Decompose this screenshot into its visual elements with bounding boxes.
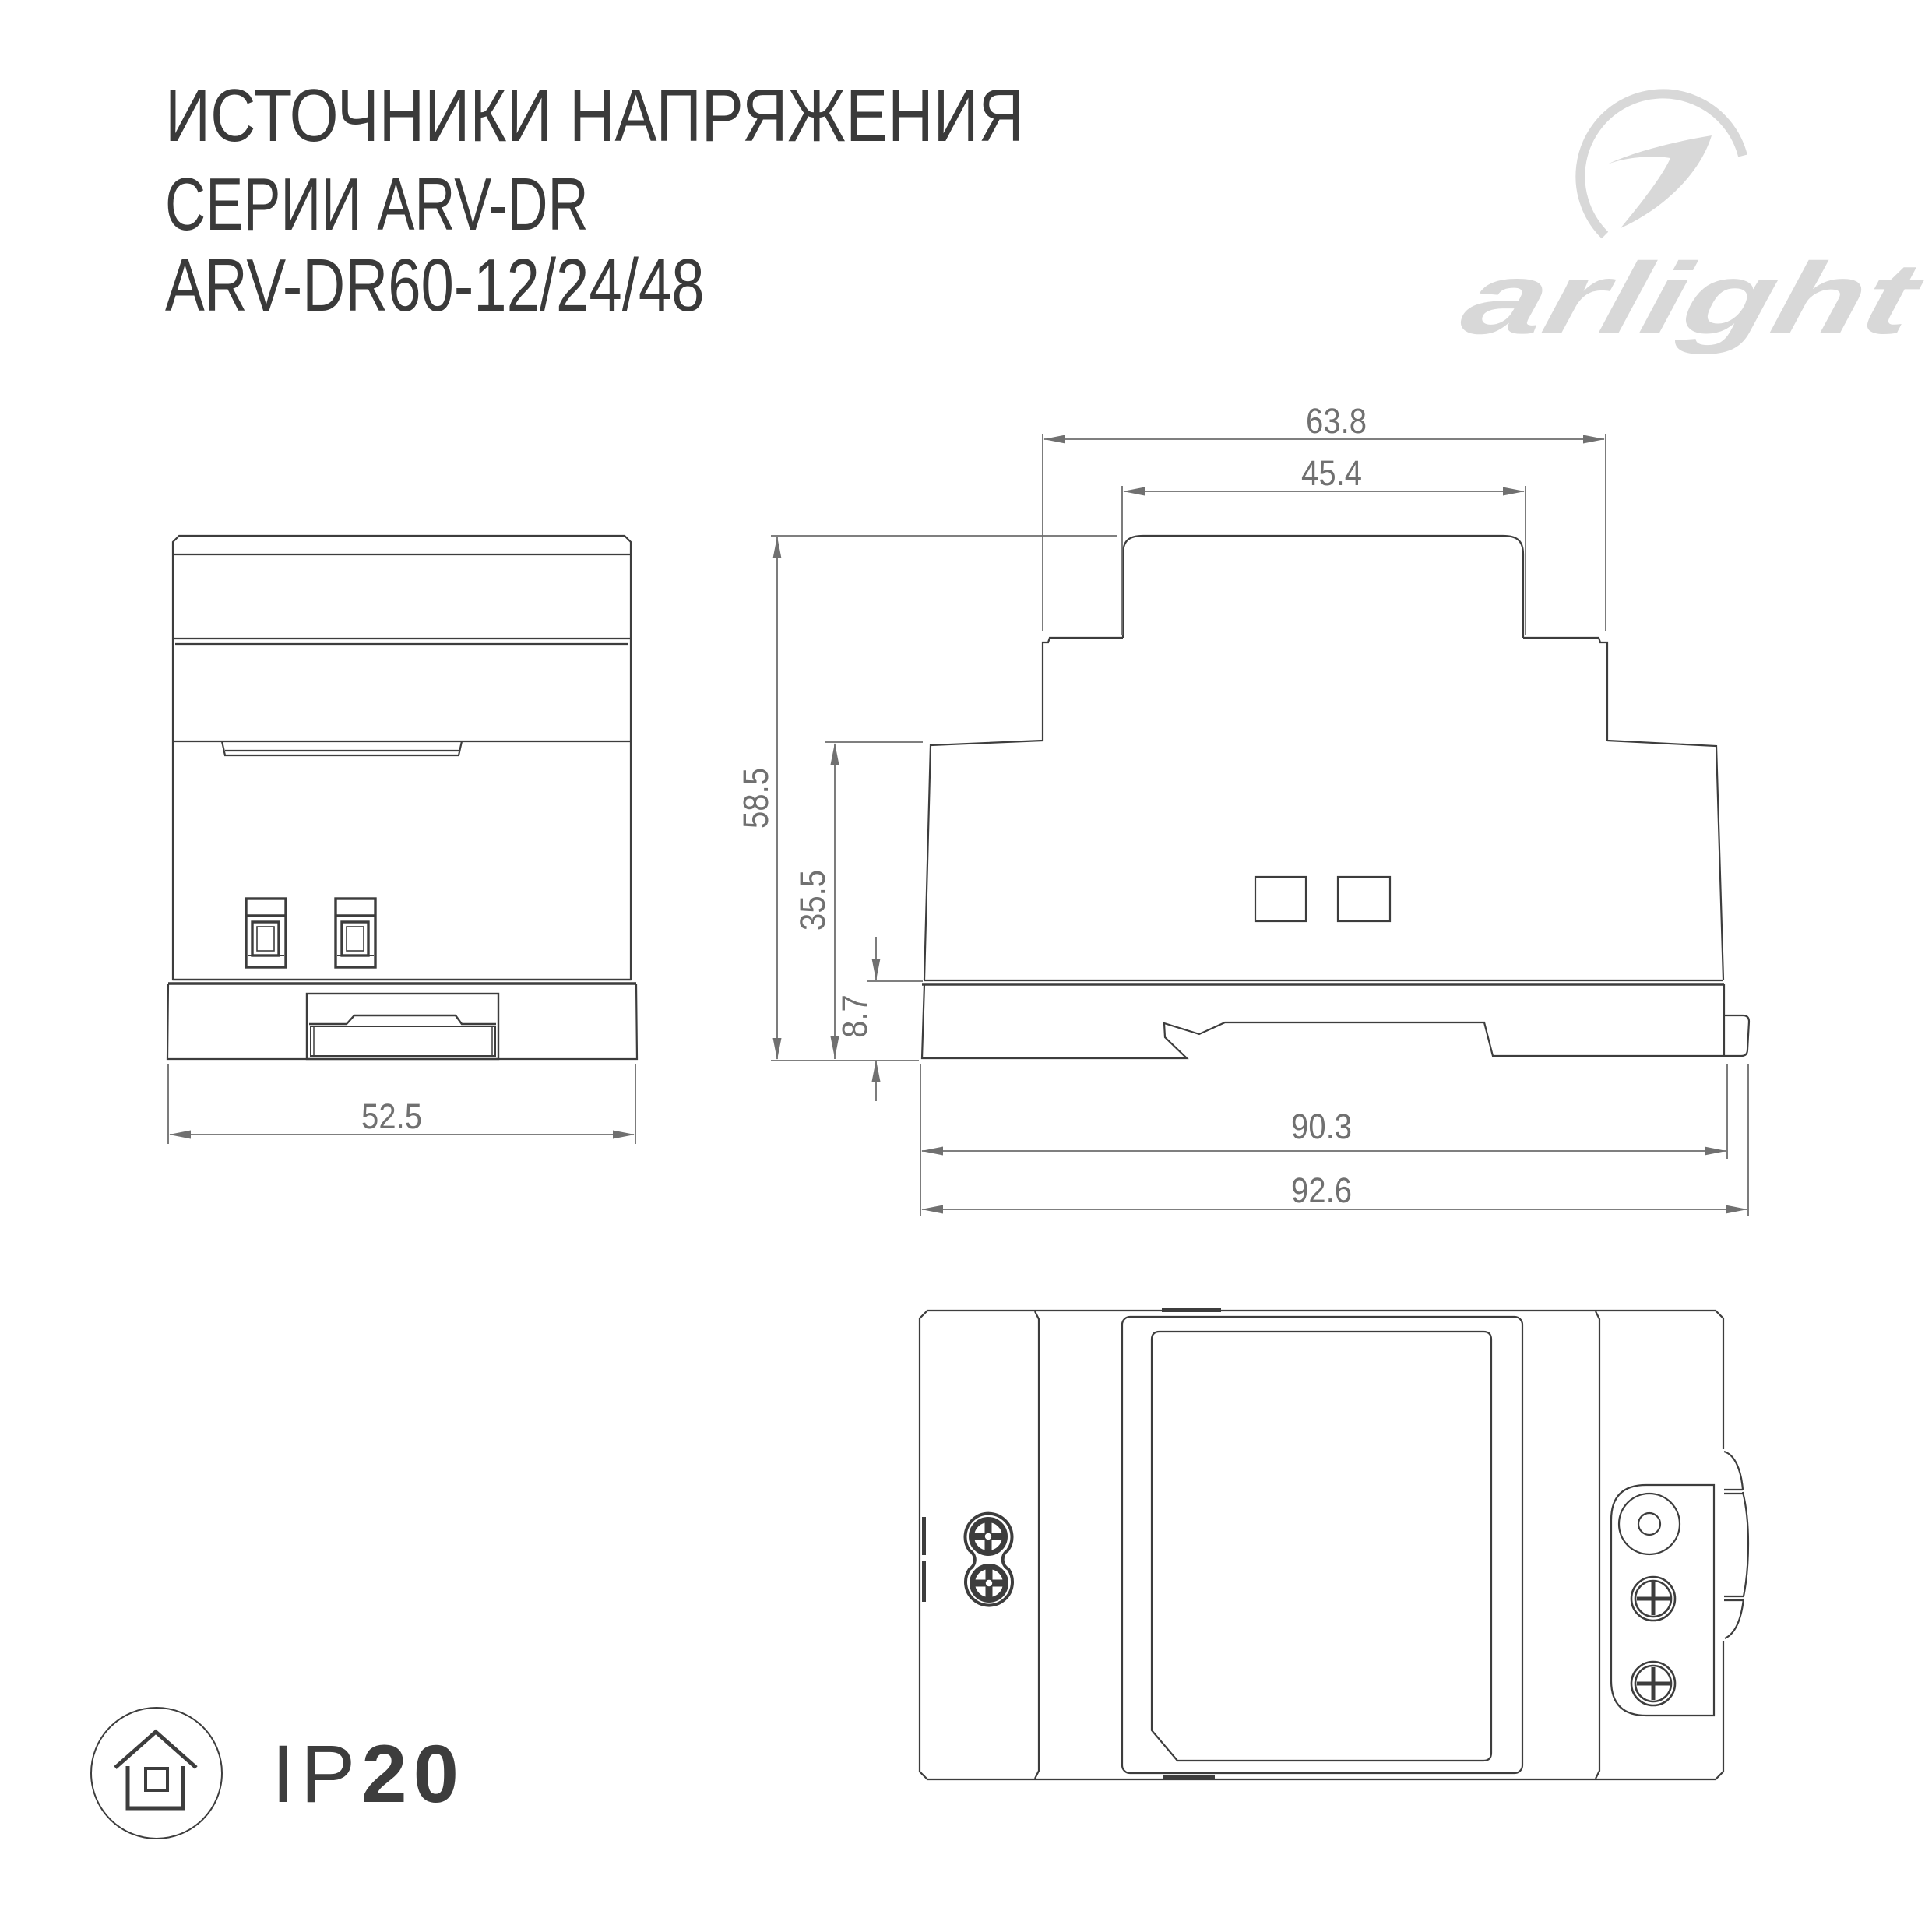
svg-text:63.8: 63.8 [1306,402,1367,442]
svg-text:8.7: 8.7 [836,994,875,1038]
svg-text:45.4: 45.4 [1301,454,1362,494]
svg-text:ARV-DR60-12/24/48: ARV-DR60-12/24/48 [165,245,705,327]
svg-text:92.6: 92.6 [1291,1171,1352,1211]
svg-text:arlight: arlight [1452,241,1932,354]
svg-text:52.5: 52.5 [361,1097,422,1137]
svg-text:IP20: IP20 [272,1729,465,1820]
svg-text:ИСТОЧНИКИ НАПРЯЖЕНИЯ: ИСТОЧНИКИ НАПРЯЖЕНИЯ [165,73,1024,157]
svg-text:90.3: 90.3 [1291,1107,1352,1147]
svg-text:35.5: 35.5 [794,870,833,931]
svg-text:58.5: 58.5 [737,768,776,829]
svg-text:СЕРИИ ARV-DR: СЕРИИ ARV-DR [165,162,589,245]
